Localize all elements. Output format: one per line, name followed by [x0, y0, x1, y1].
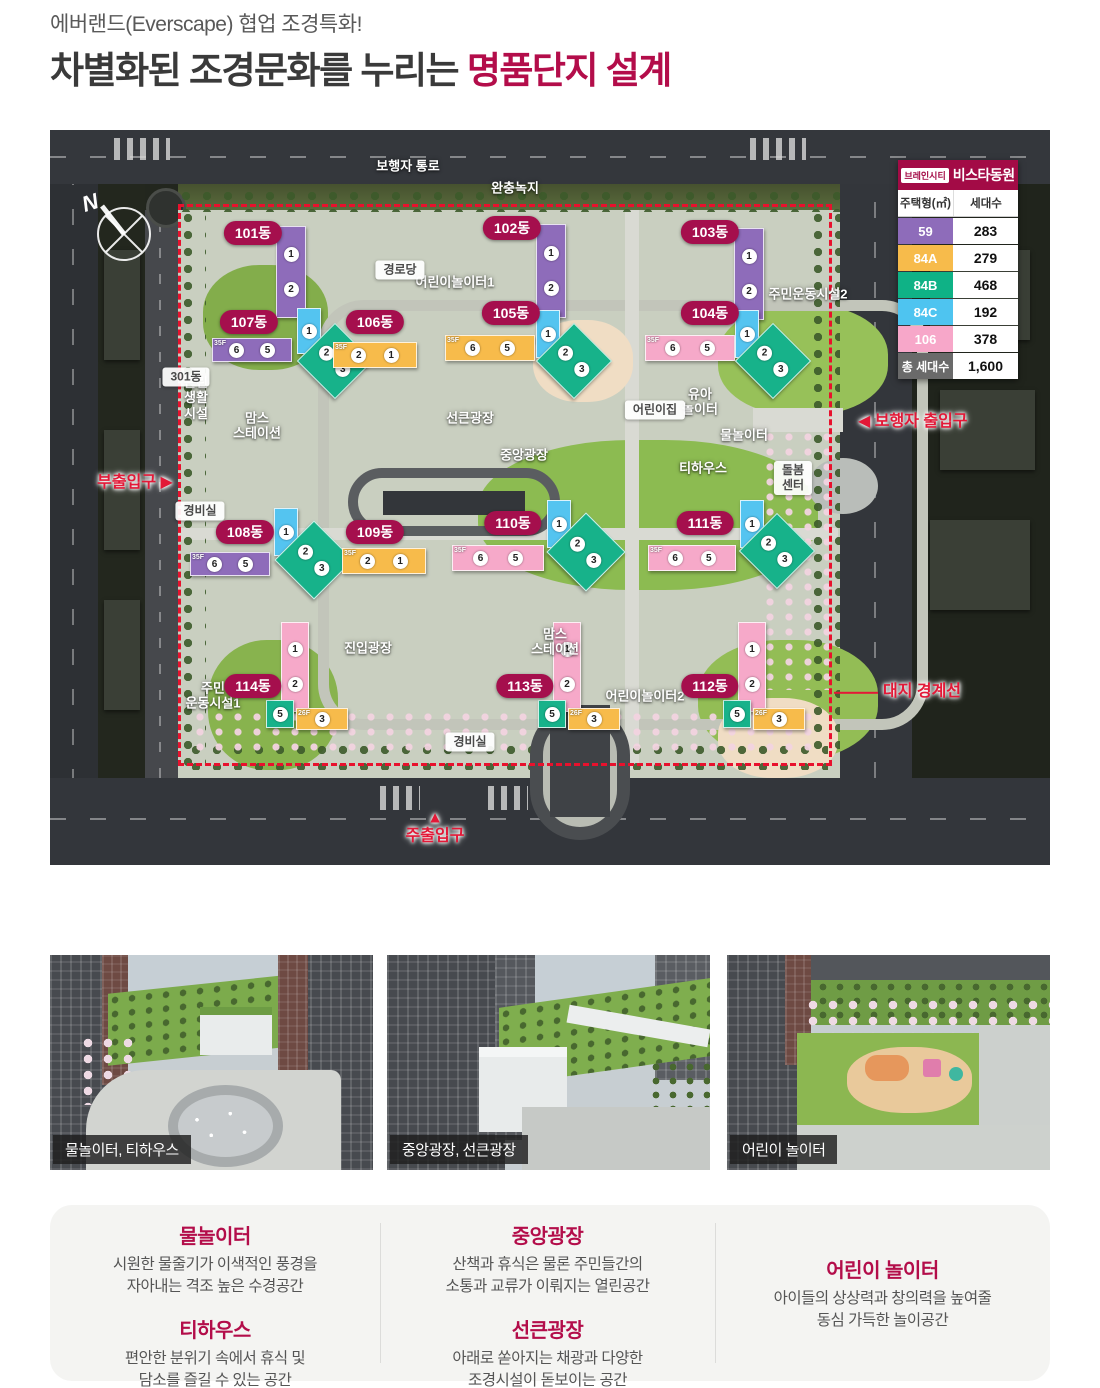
map-area-label: 완충녹지 — [491, 180, 539, 195]
map-area-label: 중앙광장 — [500, 447, 548, 462]
building-block: 35F65 — [648, 545, 736, 571]
map-entrance-label: ▲ 주출입구 — [406, 810, 465, 847]
building-block: 35F65 — [212, 338, 292, 362]
map-area-label: 주민운동시설2 — [769, 286, 848, 301]
feature-desc: 시원한 물줄기가 이색적인 풍경을 자아내는 격조 높은 수경공간 — [113, 1254, 317, 1299]
feature-col-waterplay-teahouse: 물놀이터 시원한 물줄기가 이색적인 풍경을 자아내는 격조 높은 수경공간 티… — [50, 1205, 380, 1381]
legend-col-count: 세대수 — [954, 190, 1018, 216]
legend-row: 84C192 — [898, 299, 1018, 325]
feature-desc: 아이들의 상상력과 창의력을 높여줄 동심 가득한 놀이공간 — [774, 1288, 992, 1333]
page-title-accent: 명품단지 설계 — [467, 50, 671, 91]
compass-icon: N — [76, 186, 160, 270]
legend-title: 브레인시티 비스타동원 — [898, 160, 1018, 190]
feature-col-playground: 어린이 놀이터 아이들의 상상력과 창의력을 높여줄 동심 가득한 놀이공간 — [715, 1205, 1050, 1381]
legend-total-row: 총 세대수 1,600 — [898, 353, 1018, 379]
map-facility-label: 어린이집 — [625, 401, 685, 420]
photo-caption: 물놀이터, 티하우스 — [53, 1135, 191, 1164]
feature-title: 중앙광장 — [512, 1220, 584, 1249]
building-block: 12 — [738, 622, 766, 712]
map-facility-label: 301동 — [162, 368, 209, 387]
building-block: 35F65 — [452, 545, 544, 571]
legend-total-value: 1,600 — [953, 353, 1018, 379]
map-area-label: 선큰광장 — [446, 410, 494, 425]
building-block: 35F21 — [342, 548, 426, 574]
map-entrance-label: 부출입구 ▶ — [97, 474, 173, 492]
feature-title: 선큰광장 — [512, 1314, 584, 1343]
map-facility-label: 경비실 — [445, 733, 494, 752]
building-block: 35F65 — [190, 552, 270, 576]
map-area-label: 맘스 스테이션 — [233, 411, 281, 442]
site-plan-map: N 브레인시티 비스타동원 주택형(㎡) 세대수 5928384A27984B4… — [50, 130, 1050, 865]
legend-row: 84B468 — [898, 272, 1018, 298]
map-area-label: 맘스 스테이션 — [531, 627, 579, 658]
building-label: 102동 — [483, 216, 541, 240]
building-label: 112동 — [681, 674, 738, 698]
building-label: 109동 — [346, 520, 404, 544]
page-title-plain: 차별화된 조경문화를 누리는 — [50, 50, 467, 91]
feature-title: 어린이 놀이터 — [826, 1254, 938, 1283]
legend-rows: 5928384A27984B46884C192106378 — [898, 218, 1018, 352]
feature-desc: 편안한 분위기 속에서 휴식 및 담소를 즐길 수 있는 공간 — [125, 1348, 305, 1388]
building-block: 26F3 — [296, 708, 348, 730]
map-entrance-label: 대지 경계선 — [883, 683, 961, 701]
building-block: 26F3 — [753, 708, 805, 730]
building-block: 12 — [281, 622, 309, 712]
feature-desc: 산책과 휴식은 물론 주민들간의 소통과 교류가 이뤄지는 열린공간 — [445, 1254, 649, 1299]
map-area-label: 어린이놀이터1 — [416, 274, 495, 289]
legend-row: 84A279 — [898, 245, 1018, 271]
legend-row: 106378 — [898, 326, 1018, 352]
building-block: 5 — [538, 700, 566, 728]
map-facility-label: 경비실 — [175, 502, 224, 521]
feature-title: 물놀이터 — [179, 1220, 251, 1249]
photo-caption: 중앙광장, 선큰광장 — [390, 1135, 528, 1164]
building-label: 107동 — [220, 310, 278, 334]
building-label: 113동 — [496, 674, 553, 698]
brand-name: 비스타동원 — [953, 165, 1015, 185]
landscape-brochure-page: 에버랜드(Everscape) 협업 조경특화! 차별화된 조경문화를 누리는 … — [0, 0, 1100, 1388]
building-label: 111동 — [677, 511, 734, 535]
building-block: 5 — [266, 700, 294, 728]
legend-col-type: 주택형(㎡) — [898, 190, 954, 216]
building-label: 104동 — [681, 301, 739, 325]
legend-header-row: 주택형(㎡) 세대수 — [898, 190, 1018, 217]
legend-total-label: 총 세대수 — [898, 353, 953, 379]
photo-children-playground: 어린이 놀이터 — [727, 955, 1050, 1170]
compass-north-letter: N — [79, 188, 103, 217]
building-block: 35F65 — [645, 335, 735, 361]
building-block: 35F21 — [333, 342, 417, 368]
building-block: 35F65 — [445, 335, 535, 361]
building-label: 106동 — [346, 310, 404, 334]
map-facility-label: 돌봄 센터 — [774, 461, 812, 495]
map-area-label: 물놀이터 — [720, 427, 768, 442]
feature-descriptions-panel: 물놀이터 시원한 물줄기가 이색적인 풍경을 자아내는 격조 높은 수경공간 티… — [50, 1205, 1050, 1381]
building-label: 103동 — [681, 220, 739, 244]
building-label: 101동 — [224, 221, 282, 245]
feature-desc: 아래로 쏟아지는 채광과 다양한 조경시설이 돋보이는 공간 — [452, 1348, 642, 1388]
building-label: 108동 — [216, 520, 274, 544]
feature-col-plazas: 중앙광장 산책과 휴식은 물론 주민들간의 소통과 교류가 이뤄지는 열린공간 … — [380, 1205, 715, 1381]
building-block: 26F3 — [568, 708, 620, 730]
building-block: 12 — [734, 228, 764, 320]
map-area-label: 진입광장 — [344, 640, 392, 655]
building-block: 5 — [723, 700, 751, 728]
building-block: 12 — [536, 224, 566, 318]
page-title: 차별화된 조경문화를 누리는 명품단지 설계 — [50, 40, 671, 94]
brand-chip: 브레인시티 — [901, 168, 948, 183]
photo-waterplay-teahouse: 물놀이터, 티하우스 — [50, 955, 373, 1170]
rendering-photos: 물놀이터, 티하우스 중앙광장, 선큰광장 — [50, 955, 1050, 1170]
building-label: 114동 — [224, 674, 281, 698]
photo-caption: 어린이 놀이터 — [730, 1135, 837, 1164]
map-facility-label: 경로당 — [375, 261, 424, 280]
map-entrance-label: ◀ 보행자 출입구 — [858, 413, 968, 431]
legend-row: 59283 — [898, 218, 1018, 244]
photo-central-sunken-plaza: 중앙광장, 선큰광장 — [387, 955, 710, 1170]
feature-title: 티하우스 — [179, 1314, 251, 1343]
unit-type-legend: 브레인시티 비스타동원 주택형(㎡) 세대수 5928384A27984B468… — [898, 160, 1018, 379]
map-area-label: 보행자 통로 — [376, 158, 439, 173]
map-area-label: 유아 놀이터 — [682, 387, 718, 418]
building-block: 12 — [276, 226, 306, 318]
map-area-label: 어린이놀이터2 — [606, 688, 685, 703]
building-label: 105동 — [482, 301, 540, 325]
map-area-label: 티하우스 — [679, 460, 727, 475]
building-label: 110동 — [484, 511, 541, 535]
page-subtitle: 에버랜드(Everscape) 협업 조경특화! — [50, 8, 362, 38]
